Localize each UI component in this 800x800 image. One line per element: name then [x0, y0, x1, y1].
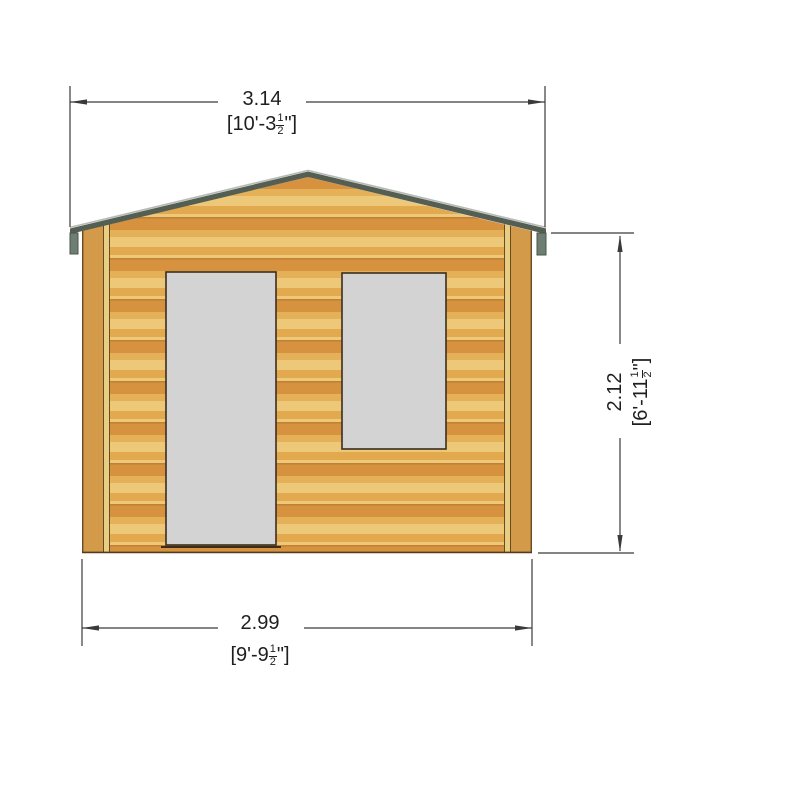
- arrow-right-icon: [515, 625, 532, 630]
- window: [342, 273, 446, 449]
- corner-board-left: [82, 218, 103, 553]
- dim-base-width-metric: 2.99: [190, 612, 330, 634]
- imperial-suffix: "]: [284, 113, 297, 135]
- arrow-left-icon: [82, 625, 99, 630]
- eave-cap-right: [537, 233, 546, 255]
- shed-elevation-drawing: 3.14 [10'-312"] 2.12 [6'-1112"] 2.99 [9'…: [0, 0, 800, 800]
- imperial-prefix: [6'-11: [630, 378, 652, 426]
- dim-overall-width-imperial: [10'-312"]: [172, 111, 352, 137]
- eave-cap-left: [70, 233, 78, 254]
- door: [166, 272, 276, 545]
- dim-overall-width-metric: 3.14: [192, 88, 332, 110]
- log-siding: [82, 176, 532, 553]
- dim-eaves-height-text: 2.12 [6'-1112"]: [596, 292, 660, 492]
- imperial-prefix: [10'-3: [227, 113, 276, 135]
- drawing-canvas: [0, 0, 800, 800]
- shed-front-face: [82, 176, 532, 553]
- fraction: 12: [630, 370, 654, 378]
- imperial-suffix: "]: [277, 644, 290, 666]
- corner-board-right: [511, 218, 532, 553]
- arrow-right-icon: [528, 99, 545, 104]
- arrow-down-icon: [617, 535, 622, 552]
- dim-base-width-imperial: [9'-912"]: [170, 642, 350, 668]
- imperial-prefix: [9'-9: [230, 644, 268, 666]
- dim-eaves-height-metric: 2.12: [602, 373, 628, 412]
- fraction: 12: [269, 644, 277, 668]
- arrow-left-icon: [70, 99, 87, 104]
- imperial-suffix: "]: [630, 358, 652, 371]
- dim-eaves-height-imperial: [6'-1112"]: [628, 358, 654, 427]
- arrow-up-icon: [617, 235, 622, 252]
